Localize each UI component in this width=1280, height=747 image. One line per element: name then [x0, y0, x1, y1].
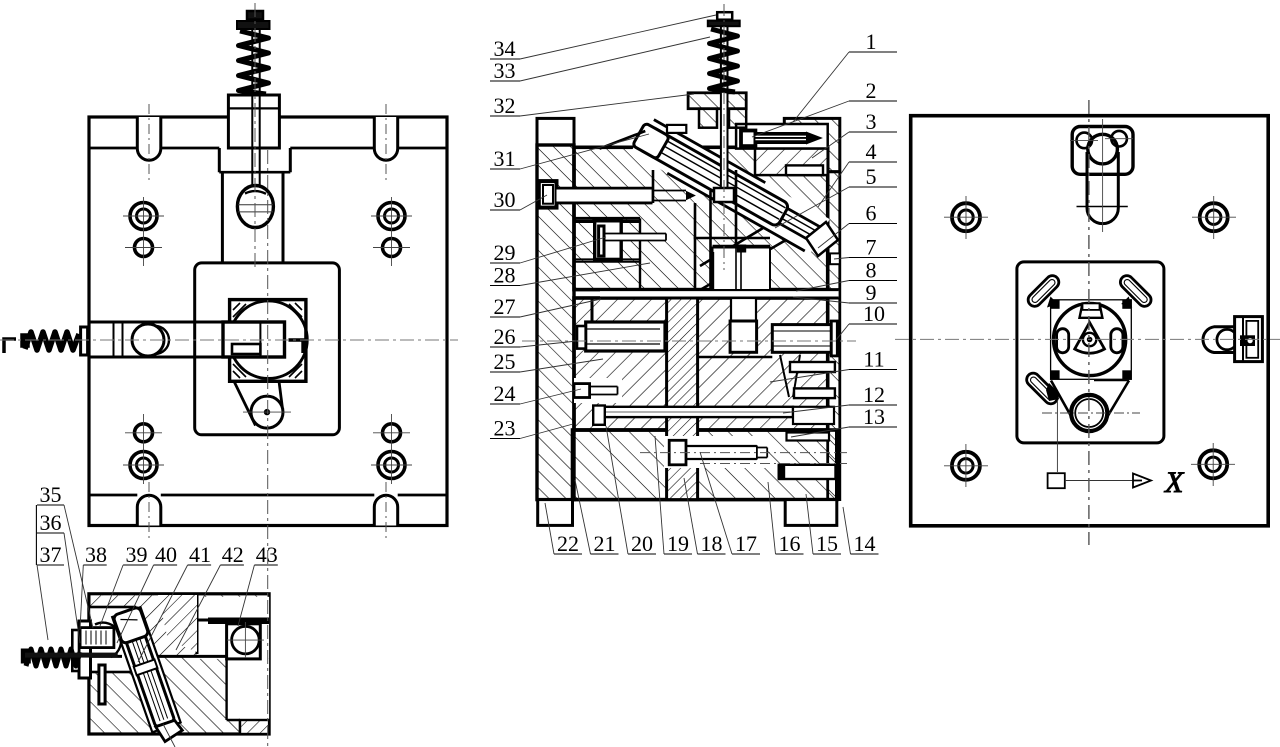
svg-text:17: 17 — [735, 531, 757, 556]
svg-text:21: 21 — [594, 531, 616, 556]
svg-text:27: 27 — [494, 294, 516, 319]
svg-text:39: 39 — [126, 542, 148, 567]
svg-text:20: 20 — [631, 531, 653, 556]
svg-text:6: 6 — [866, 201, 877, 226]
svg-text:X: X — [1164, 466, 1185, 499]
svg-text:41: 41 — [189, 542, 211, 567]
svg-text:15: 15 — [816, 531, 838, 556]
svg-text:36: 36 — [40, 510, 62, 535]
svg-text:35: 35 — [40, 482, 62, 507]
svg-text:4: 4 — [866, 139, 877, 164]
svg-text:31: 31 — [494, 146, 516, 171]
svg-text:43: 43 — [256, 542, 278, 567]
svg-text:30: 30 — [494, 187, 516, 212]
svg-text:33: 33 — [494, 58, 516, 83]
svg-text:18: 18 — [701, 531, 723, 556]
svg-text:2: 2 — [866, 78, 877, 103]
svg-text:19: 19 — [667, 531, 689, 556]
svg-text:32: 32 — [494, 93, 516, 118]
svg-text:40: 40 — [155, 542, 177, 567]
svg-text:13: 13 — [863, 404, 885, 429]
svg-text:5: 5 — [866, 164, 877, 189]
svg-text:3: 3 — [866, 109, 877, 134]
svg-text:26: 26 — [494, 324, 516, 349]
svg-text:42: 42 — [222, 542, 244, 567]
svg-text:28: 28 — [494, 263, 516, 288]
svg-text:38: 38 — [85, 542, 107, 567]
svg-text:10: 10 — [863, 301, 885, 326]
svg-text:25: 25 — [494, 349, 516, 374]
svg-text:24: 24 — [494, 381, 516, 406]
svg-text:11: 11 — [863, 347, 884, 372]
svg-text:29: 29 — [494, 240, 516, 265]
svg-text:8: 8 — [866, 258, 877, 283]
svg-text:22: 22 — [557, 531, 579, 556]
svg-text:23: 23 — [494, 416, 516, 441]
svg-text:1: 1 — [866, 29, 877, 54]
svg-text:37: 37 — [40, 542, 62, 567]
svg-text:16: 16 — [779, 531, 801, 556]
svg-text:7: 7 — [866, 235, 877, 260]
svg-text:14: 14 — [854, 531, 876, 556]
